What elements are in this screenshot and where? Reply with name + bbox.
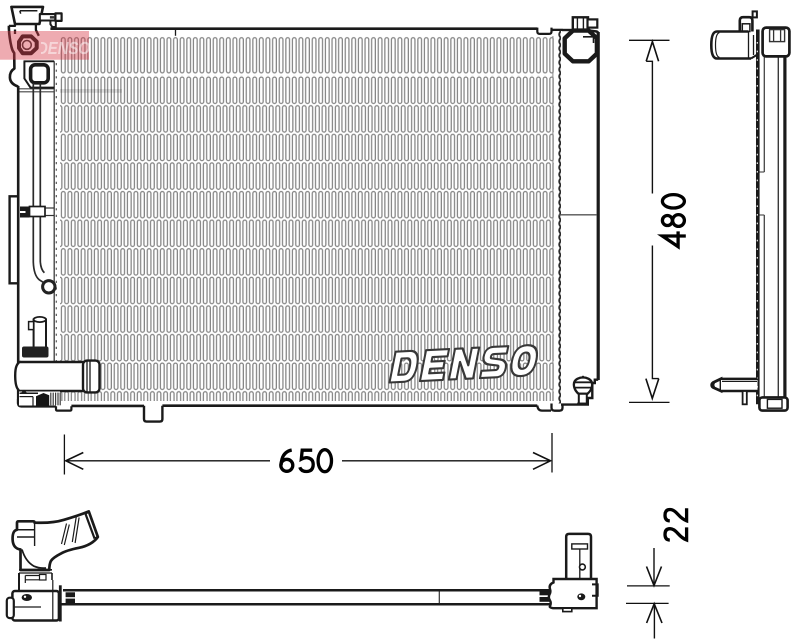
svg-text:DENSO: DENSO bbox=[37, 38, 90, 58]
